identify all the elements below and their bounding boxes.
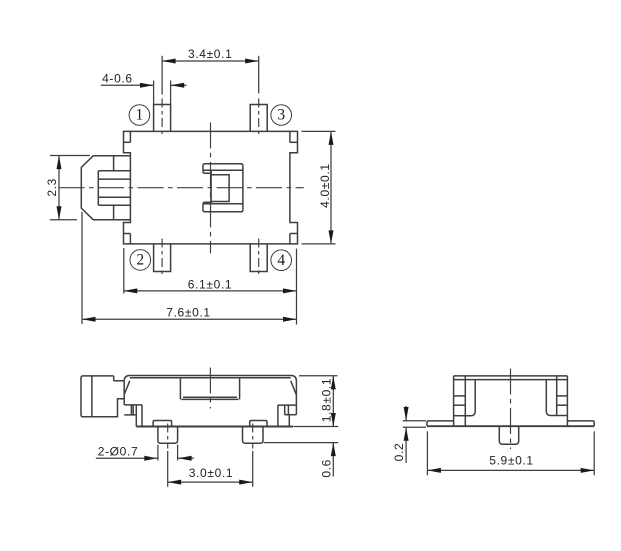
svg-text:3.4±0.1: 3.4±0.1 [188,47,233,61]
svg-text:6.1±0.1: 6.1±0.1 [188,278,233,292]
svg-text:2-Ø0.7: 2-Ø0.7 [98,445,139,459]
svg-text:2.3: 2.3 [45,178,59,197]
svg-text:1: 1 [136,107,144,124]
svg-text:3: 3 [277,107,285,124]
svg-text:5.9±0.1: 5.9±0.1 [489,454,534,468]
svg-text:4: 4 [277,252,285,269]
svg-text:0.6: 0.6 [319,459,333,478]
svg-text:2: 2 [136,252,144,269]
svg-text:7.6±0.1: 7.6±0.1 [166,305,211,319]
svg-text:3.0±0.1: 3.0±0.1 [189,466,234,480]
svg-text:4-0.6: 4-0.6 [102,72,133,86]
svg-text:0.2: 0.2 [392,443,406,462]
svg-text:4.0±0.1: 4.0±0.1 [318,163,332,208]
